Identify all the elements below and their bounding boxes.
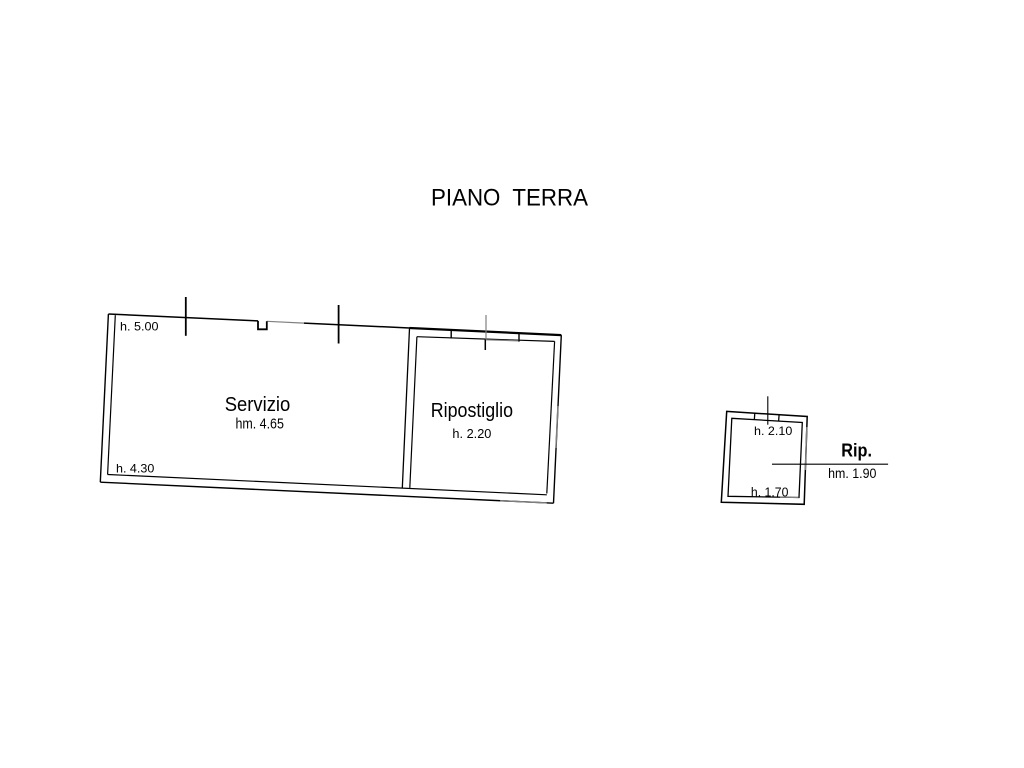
svg-text:h. 5.00: h. 5.00 [120, 320, 159, 334]
svg-text:h. 2.20: h. 2.20 [452, 427, 491, 441]
svg-text:hm. 1.90: hm. 1.90 [828, 465, 876, 481]
svg-text:h. 1.70: h. 1.70 [751, 485, 789, 499]
svg-text:h. 2.10: h. 2.10 [754, 424, 793, 438]
svg-text:h. 4.30: h. 4.30 [116, 461, 155, 475]
svg-text:Ripostiglio: Ripostiglio [431, 400, 513, 422]
svg-text:hm. 4.65: hm. 4.65 [236, 415, 284, 432]
svg-text:Rip.: Rip. [841, 441, 872, 461]
svg-text:Servizio: Servizio [225, 394, 291, 416]
svg-text:PIANO TERRA: PIANO TERRA [431, 185, 588, 212]
